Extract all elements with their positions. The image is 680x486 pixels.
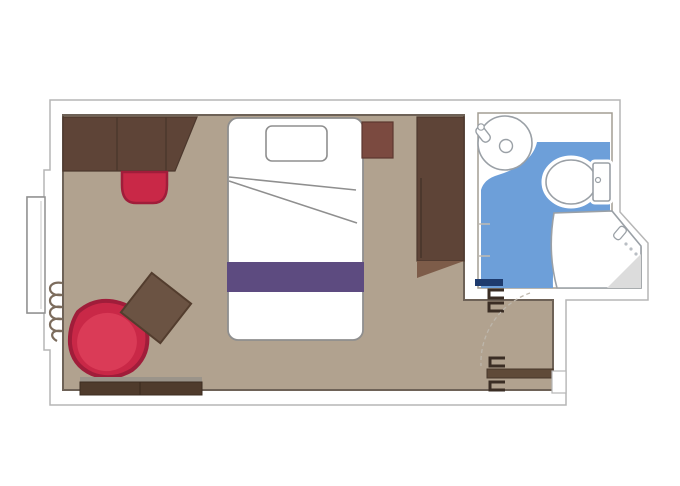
floor-plan-canvas [0,0,680,486]
sink-faucet-knob [478,124,484,130]
bed [227,118,364,340]
bed-runner [227,262,364,292]
shower-spray-dot [624,242,627,245]
entry-door [487,369,553,378]
nightstand [362,122,393,158]
desk-chair [122,172,167,203]
wardrobe-body [417,117,464,261]
toilet-tank [593,163,610,201]
cabin-floor-plan [0,0,680,486]
entry-door-jamb-notch [552,371,566,393]
shower-spray-dot [629,247,632,250]
bathroom-door [475,279,503,286]
sink-basin [478,116,532,170]
toilet-bowl [546,160,596,204]
bench-body [80,382,202,395]
bed-mattress [228,118,363,340]
shower-spray-dot [634,252,637,255]
toilet [546,160,610,204]
wardrobe [417,117,464,278]
bench [80,377,202,395]
desk-unit [63,117,197,171]
window [27,197,45,313]
